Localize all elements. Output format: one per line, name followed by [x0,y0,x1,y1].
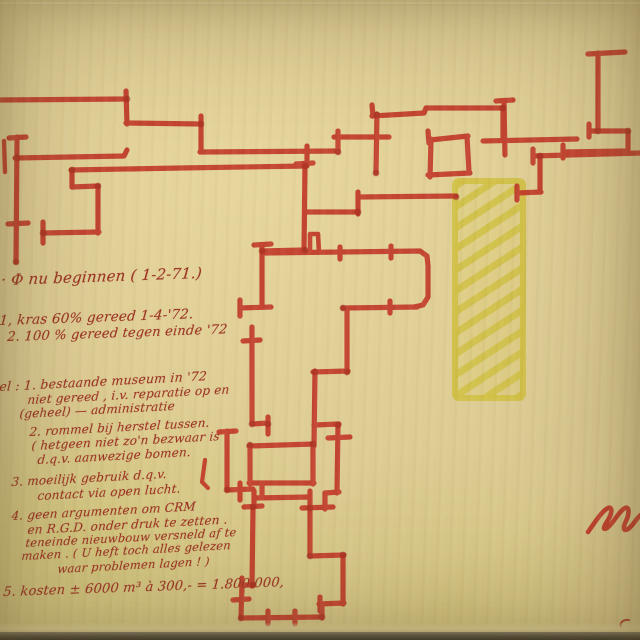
wall-line [202,460,208,488]
wall-line [517,192,541,193]
wall-line [467,136,469,172]
wall-line [241,617,322,618]
wall-line [219,431,236,432]
wall-line [233,599,249,600]
wall-line [588,52,625,54]
wall-line [240,307,271,308]
wall-line [254,244,271,245]
wall-line [430,136,468,140]
wall-line [328,437,350,438]
wall-line [262,251,428,307]
wall-line [310,234,319,252]
wall-line [428,173,470,175]
wall-line [71,166,307,170]
photographed-sketch: · Φ nu beginnen ( 1-2-71.)1, kras 60% ge… [0,0,640,640]
wall-line [200,151,338,152]
signature-mark [588,508,640,532]
wall-line [72,186,98,187]
wall-line [376,114,377,173]
wall-line [343,307,417,308]
photo-edge-strip [0,632,640,640]
wall-line [483,139,577,141]
wall-line [358,196,456,197]
wall-line [43,232,99,233]
wall-line [0,99,126,100]
wall-line [304,163,305,251]
wall-line [4,141,5,172]
wall-line [8,223,28,224]
wall-line [9,137,26,138]
wall-line [254,497,310,498]
wall-line [126,123,201,124]
wall-line [249,444,314,446]
wall-line [15,150,127,158]
wall-line [310,555,344,556]
wall-line [428,131,429,143]
wall-line [314,371,315,446]
wall-line [252,507,253,586]
paper-bottom-edge [0,623,640,632]
wall-line [563,151,628,152]
wall-line [496,100,513,101]
wall-line [372,108,503,116]
wall-line [243,340,260,341]
